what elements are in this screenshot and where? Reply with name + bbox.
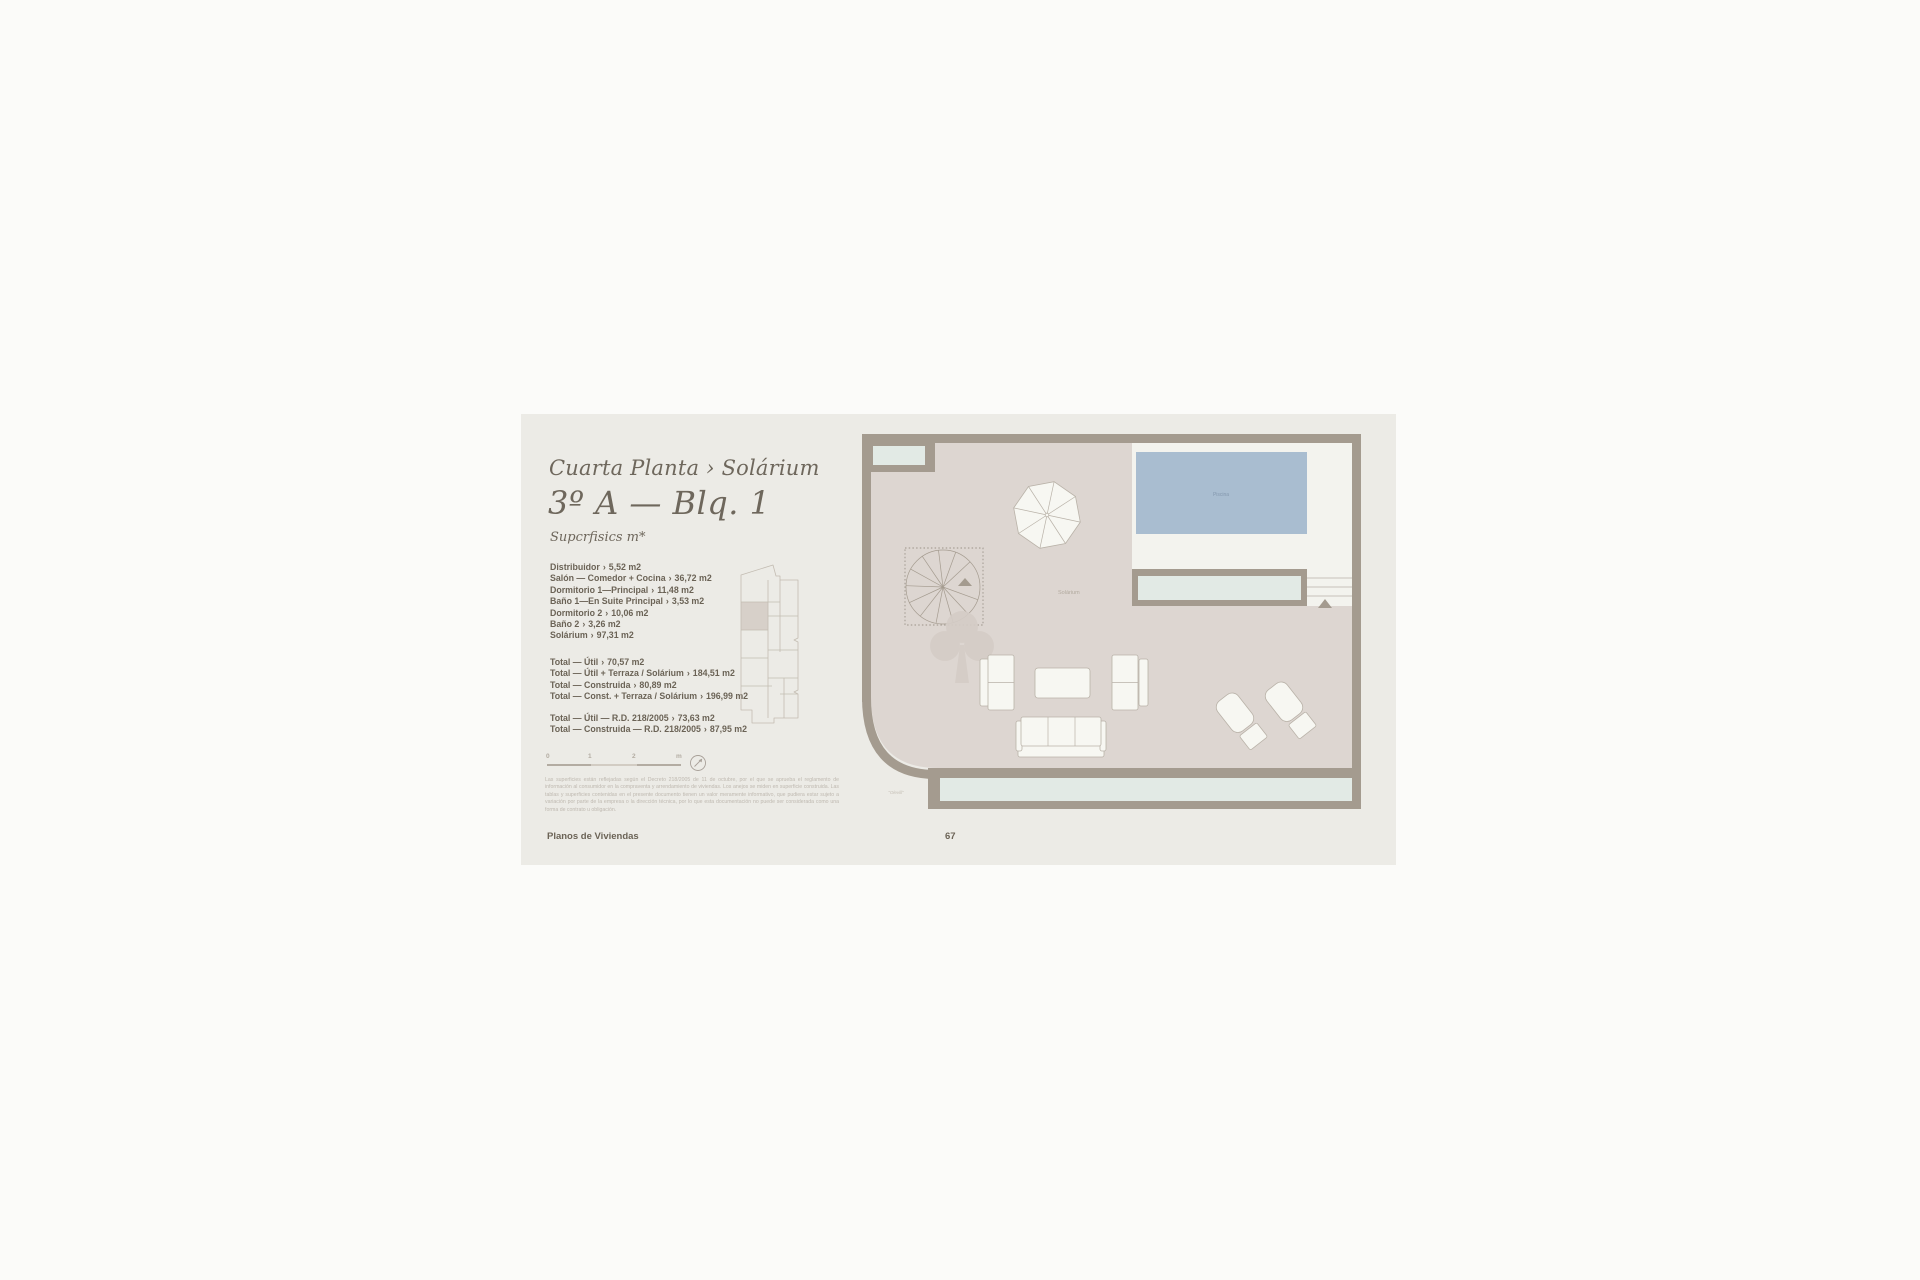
area-row: Solárium›97,31 m2 xyxy=(550,630,712,641)
total-separator: › xyxy=(700,691,703,701)
area-row: Baño 1—En Suite Principal›3,53 m2 xyxy=(550,596,712,607)
terrace-strip xyxy=(940,778,1352,801)
total-separator: › xyxy=(687,668,690,678)
scale-tick-m: m xyxy=(676,753,682,760)
area-separator: › xyxy=(591,630,594,640)
north-compass-icon xyxy=(689,754,707,772)
scale-segment xyxy=(637,764,681,766)
total-row: Total — Const. + Terraza / Solárium›196,… xyxy=(550,691,748,702)
total-separator: › xyxy=(704,724,707,734)
area-row: Dormitorio 1—Principal›11,48 m2 xyxy=(550,585,712,596)
footer-section-title: Planos de Viviendas xyxy=(547,831,639,842)
area-value: 11,48 m2 xyxy=(657,585,694,595)
stairs xyxy=(1307,569,1352,608)
area-value: 3,26 m2 xyxy=(588,619,620,629)
floor-plan: Piscina xyxy=(858,431,1363,809)
area-label: Distribuidor xyxy=(550,562,600,572)
area-separator: › xyxy=(669,573,672,583)
total-row: Total — Construida›80,89 m2 xyxy=(550,680,748,691)
area-value: 97,31 m2 xyxy=(597,630,634,640)
area-separator: › xyxy=(666,596,669,606)
area-row: Salón — Comedor + Cocina›36,72 m2 xyxy=(550,573,712,584)
sofa xyxy=(1016,717,1106,757)
area-row: Dormitorio 2›10,06 m2 xyxy=(550,608,712,619)
area-value: 10,06 m2 xyxy=(611,608,648,618)
total-row: Total — Útil + Terraza / Solárium›184,51… xyxy=(550,668,748,679)
total-row: Total — Útil›70,57 m2 xyxy=(550,657,748,668)
area-separator: › xyxy=(582,619,585,629)
highlighted-unit xyxy=(741,602,768,630)
corner-note: "Olevill" xyxy=(888,790,904,795)
total-separator: › xyxy=(633,680,636,690)
floor-subtitle: Cuarta Planta › Solárium xyxy=(549,456,820,480)
area-separator: › xyxy=(605,608,608,618)
area-row: Distribuidor›5,52 m2 xyxy=(550,562,712,573)
total-value: 70,57 m2 xyxy=(607,657,644,667)
totals-list-primary: Total — Útil›70,57 m2 Total — Útil + Ter… xyxy=(550,657,748,703)
total-label: Total — Construida — R.D. 218/2005 xyxy=(550,724,701,734)
building-outline xyxy=(741,565,798,723)
area-label: Dormitorio 2 xyxy=(550,608,602,618)
planter-strip xyxy=(1138,576,1301,600)
armchair-left xyxy=(980,655,1014,710)
scale-tick-2: 2 xyxy=(632,753,636,760)
area-label: Dormitorio 1—Principal xyxy=(550,585,648,595)
scale-segment xyxy=(591,764,637,766)
areas-section-label: Supcrfisics m* xyxy=(550,530,646,545)
legal-disclaimer: Las superficies están reflejadas según e… xyxy=(545,777,839,814)
page-title: 3º A — Blq. 1 xyxy=(548,484,770,522)
total-label: Total — Útil — R.D. 218/2005 xyxy=(550,713,669,723)
brochure-page: Cuarta Planta › Solárium 3º A — Blq. 1 S… xyxy=(521,414,1396,865)
area-separator: › xyxy=(651,585,654,595)
room-area-list: Distribuidor›5,52 m2 Salón — Comedor + C… xyxy=(550,562,712,642)
totals-list-decree: Total — Útil — R.D. 218/2005›73,63 m2 To… xyxy=(550,713,747,736)
total-separator: › xyxy=(672,713,675,723)
total-row: Total — Construida — R.D. 218/2005›87,95… xyxy=(550,724,747,735)
area-label: Solárium xyxy=(550,630,588,640)
total-label: Total — Útil + Terraza / Solárium xyxy=(550,668,684,678)
area-separator: › xyxy=(603,562,606,572)
scale-tick-0: 0 xyxy=(546,753,550,760)
total-label: Total — Const. + Terraza / Solárium xyxy=(550,691,697,701)
unit-partition-lines xyxy=(741,580,798,718)
area-value: 3,53 m2 xyxy=(672,596,704,606)
pool-label: Piscina xyxy=(1213,492,1229,498)
armchair-right xyxy=(1112,655,1148,710)
area-label: Salón — Comedor + Cocina xyxy=(550,573,666,583)
total-separator: › xyxy=(601,657,604,667)
scale-tick-1: 1 xyxy=(588,753,592,760)
key-plan-locator xyxy=(728,560,808,732)
area-value: 5,52 m2 xyxy=(609,562,641,572)
area-label: Baño 1—En Suite Principal xyxy=(550,596,663,606)
total-value: 73,63 m2 xyxy=(678,713,715,723)
scale-segment xyxy=(547,764,591,766)
coffee-table xyxy=(1035,668,1090,698)
page-number: 67 xyxy=(945,831,956,842)
area-label: Baño 2 xyxy=(550,619,579,629)
area-value: 36,72 m2 xyxy=(675,573,712,583)
solarium-label: Solárium xyxy=(1058,590,1080,596)
total-label: Total — Útil xyxy=(550,657,598,667)
screenshot-canvas: Cuarta Planta › Solárium 3º A — Blq. 1 S… xyxy=(0,0,1920,1280)
total-label: Total — Construida xyxy=(550,680,630,690)
jacuzzi-box xyxy=(873,446,925,465)
total-value: 80,89 m2 xyxy=(639,680,676,690)
area-row: Baño 2›3,26 m2 xyxy=(550,619,712,630)
total-row: Total — Útil — R.D. 218/2005›73,63 m2 xyxy=(550,713,747,724)
